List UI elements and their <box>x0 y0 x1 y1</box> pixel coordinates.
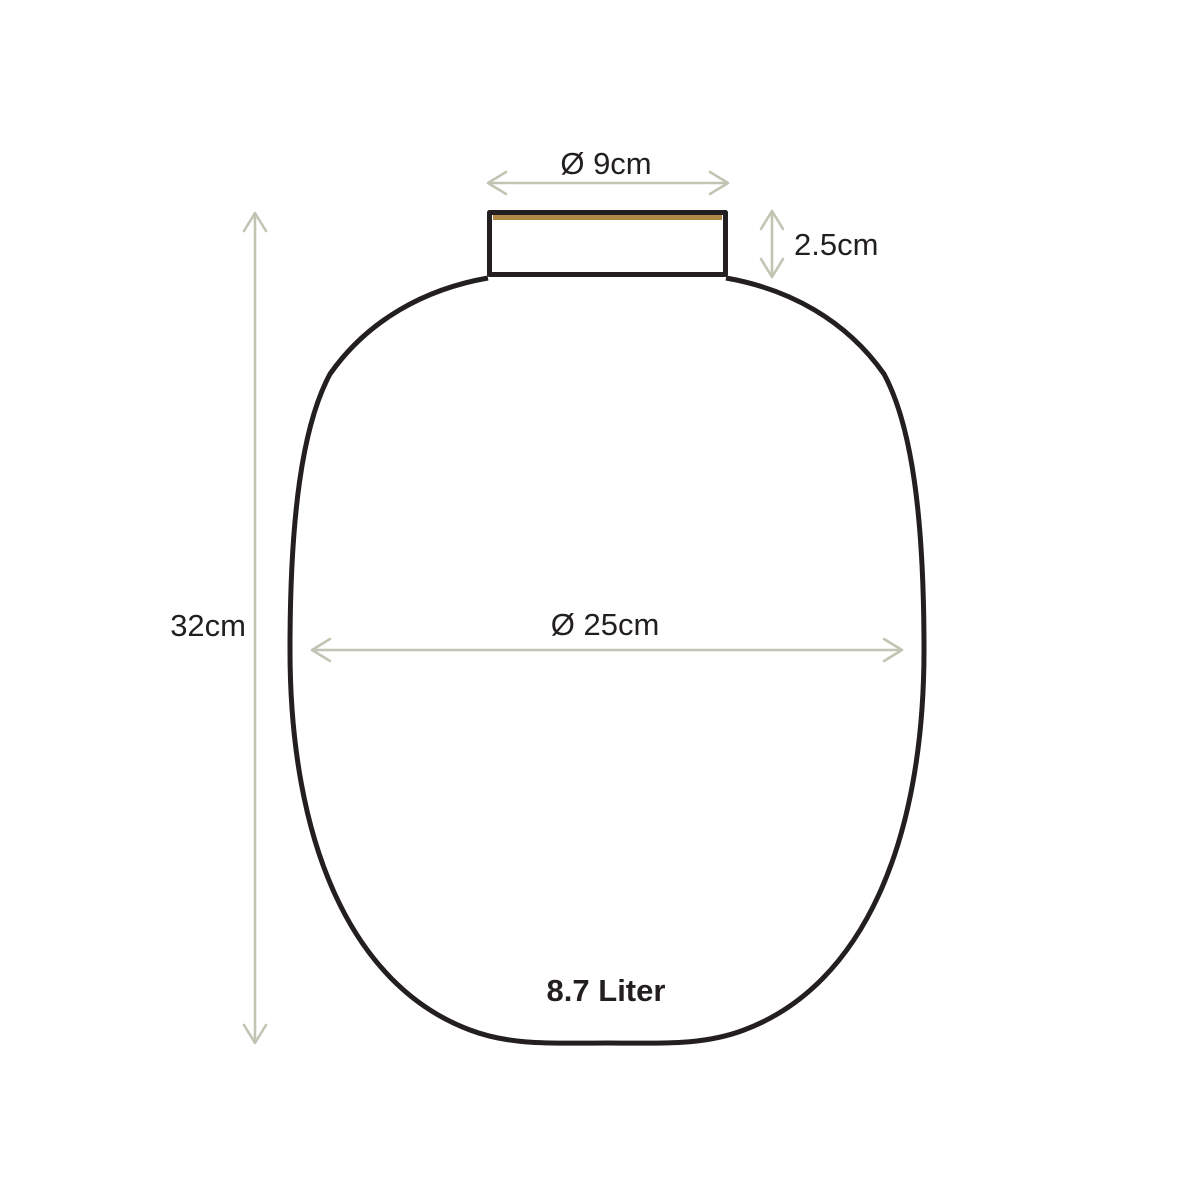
label-neck-height: 2.5cm <box>794 227 878 262</box>
label-total-height: 32cm <box>170 608 246 643</box>
label-capacity: 8.7 Liter <box>547 973 666 1008</box>
label-body-diameter: Ø 25cm <box>551 607 660 642</box>
diagram-canvas: Ø 9cm 2.5cm 32cm Ø 25cm 8.7 Liter <box>0 0 1200 1200</box>
vase-body-outline <box>290 278 924 1043</box>
label-top-diameter: Ø 9cm <box>560 146 651 181</box>
vase-neck-outline <box>490 213 726 275</box>
vase-dimension-diagram: Ø 9cm 2.5cm 32cm Ø 25cm 8.7 Liter <box>0 0 1200 1200</box>
